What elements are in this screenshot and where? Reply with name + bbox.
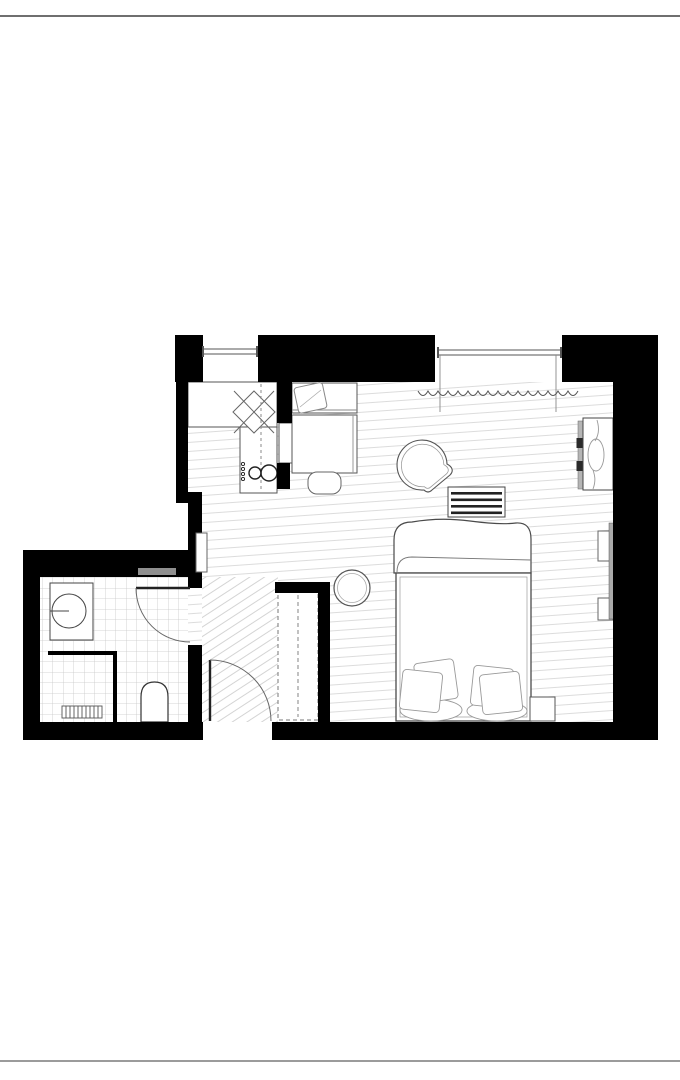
duct-chase <box>196 533 207 572</box>
round-side-table <box>334 570 370 606</box>
toilet <box>141 682 168 722</box>
wardrobe <box>278 592 318 720</box>
dining-table <box>292 415 357 473</box>
duvet-roll <box>394 519 531 573</box>
shower-drain-grate <box>62 706 102 718</box>
bedside-stool <box>530 697 555 721</box>
designer-radiator <box>577 418 614 490</box>
floor-plan-canvas <box>0 0 680 1080</box>
washbasin <box>50 583 93 640</box>
bench-pillow <box>294 382 328 413</box>
window <box>203 346 258 357</box>
radiator <box>448 487 505 517</box>
page <box>0 0 680 1080</box>
bed-pillows <box>467 665 527 721</box>
wall-niche <box>138 568 176 575</box>
double-bed <box>394 519 531 721</box>
hallway-floor <box>202 577 278 722</box>
dining-chair <box>308 472 341 494</box>
